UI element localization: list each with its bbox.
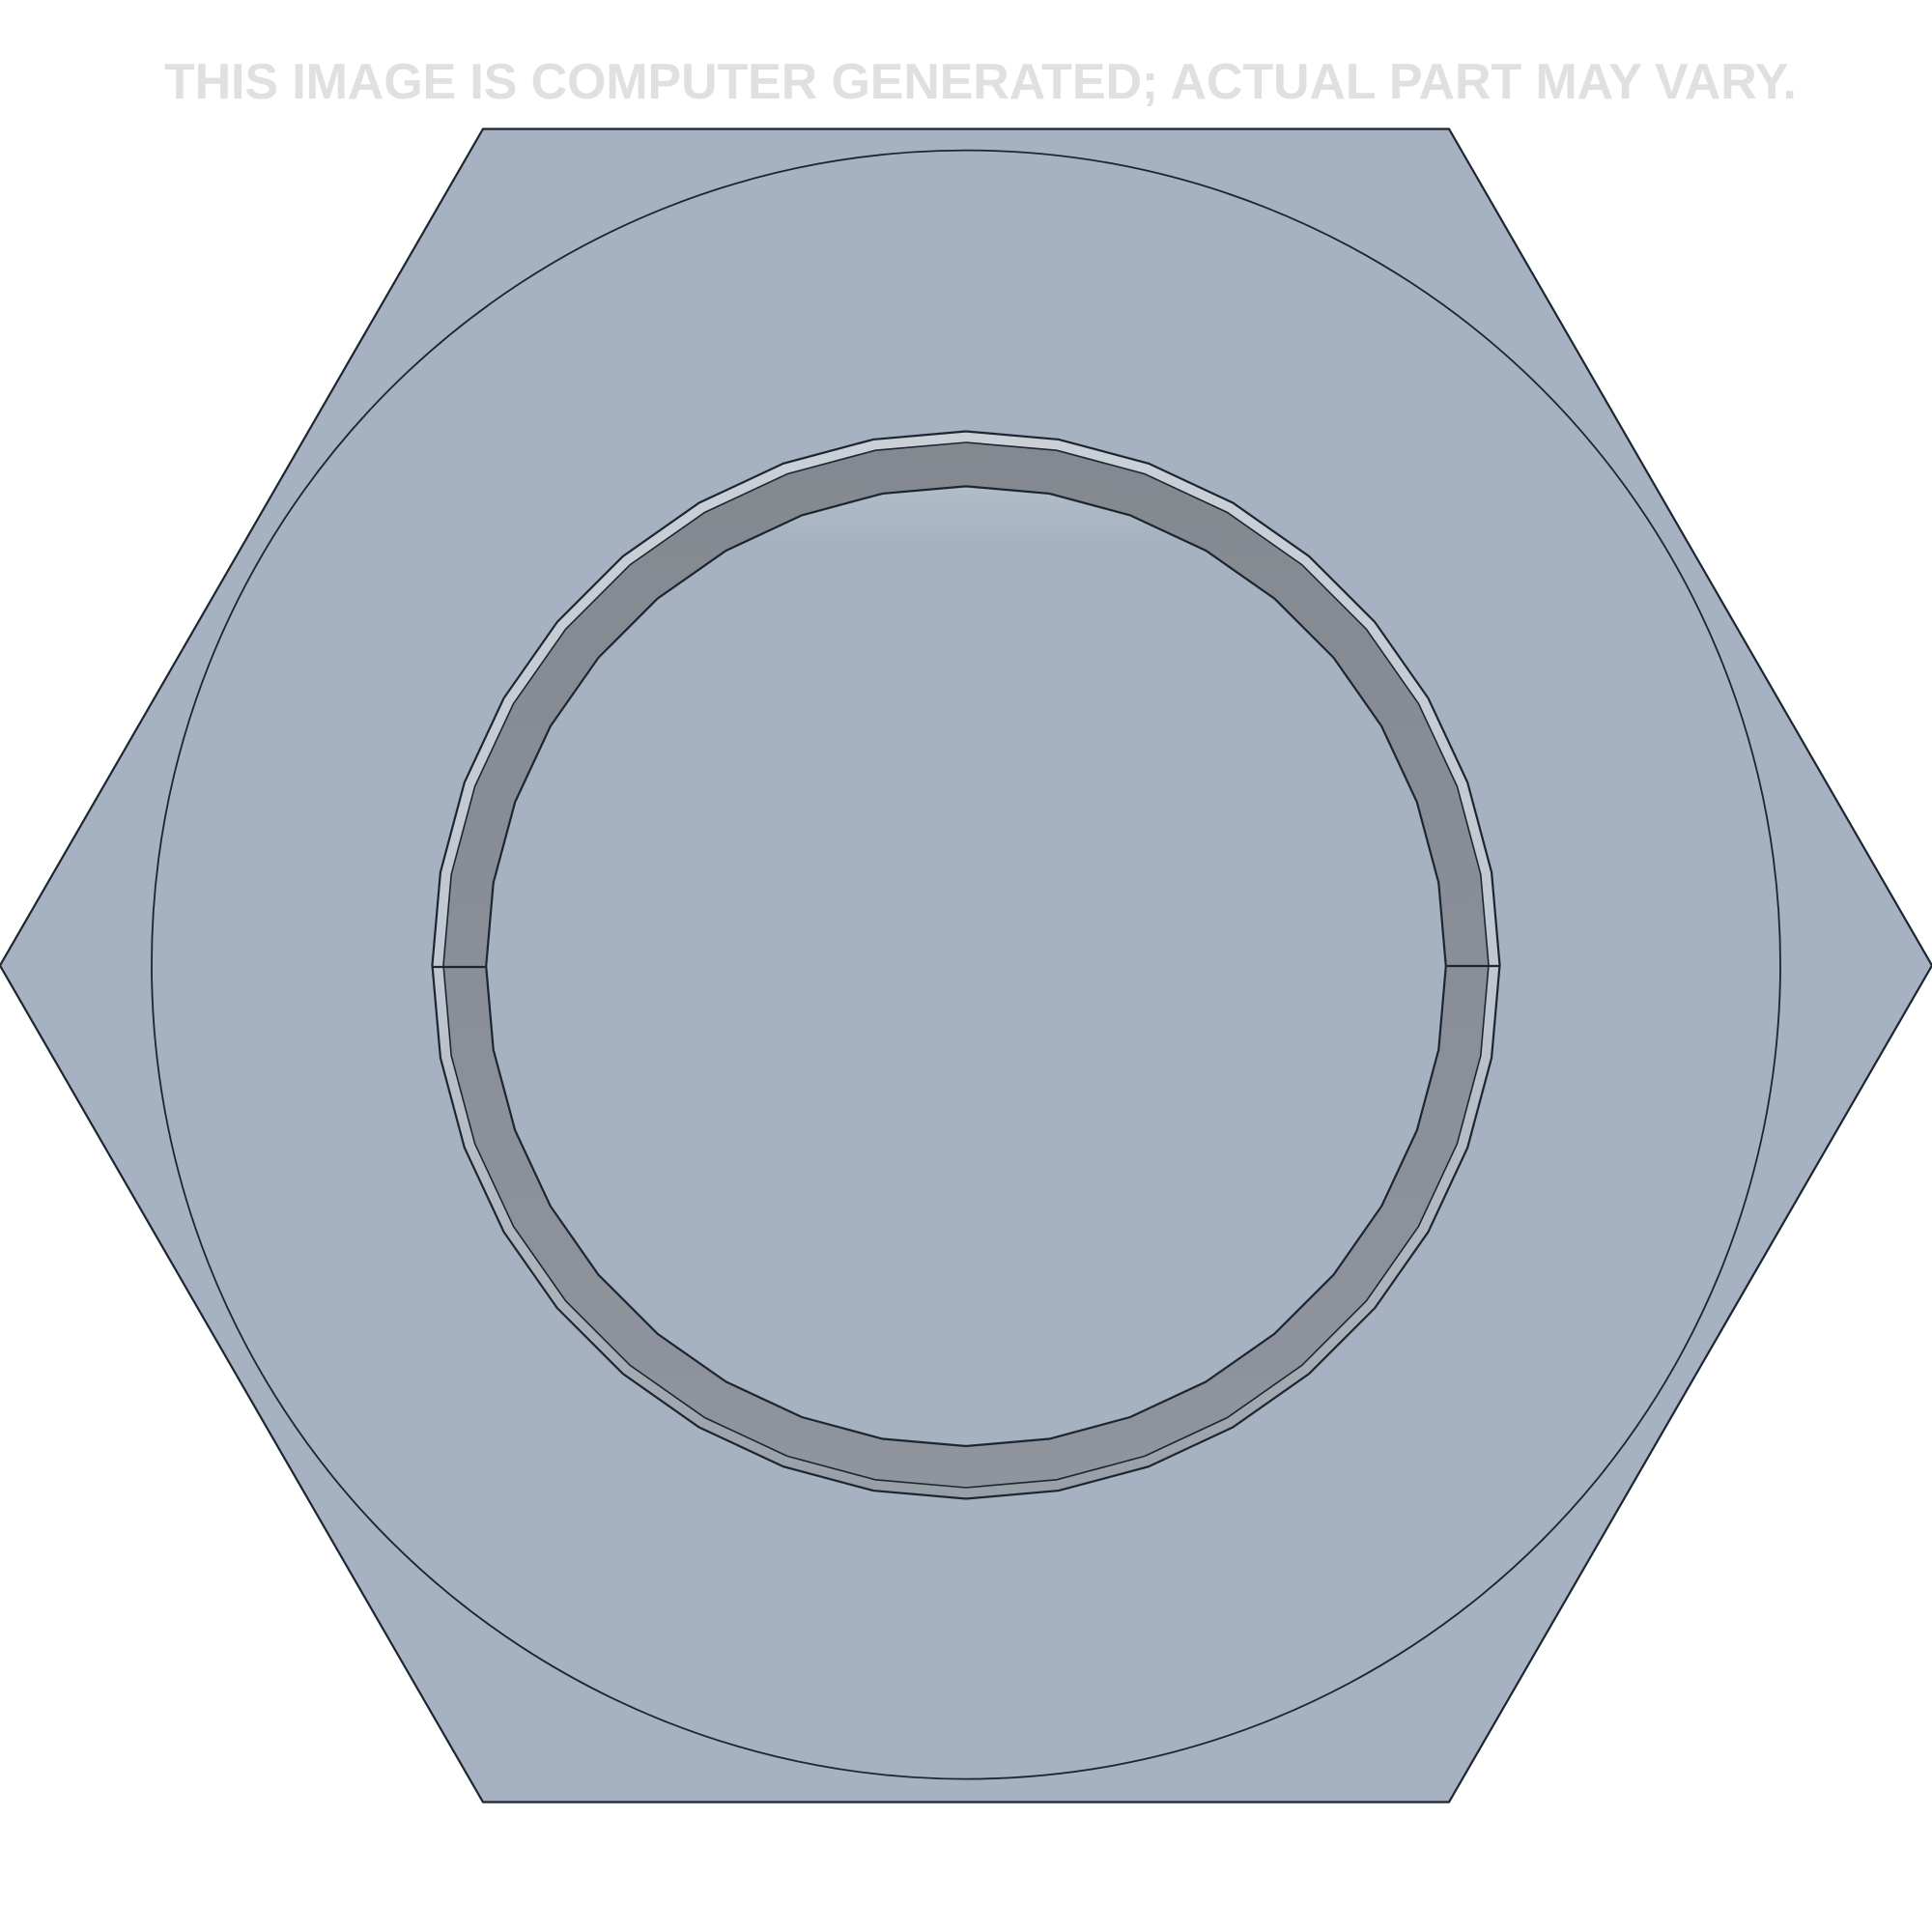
svg-text:THIS IMAGE IS COMPUTER GENERAT: THIS IMAGE IS COMPUTER GENERATED; ACTUAL… [164,54,1797,110]
